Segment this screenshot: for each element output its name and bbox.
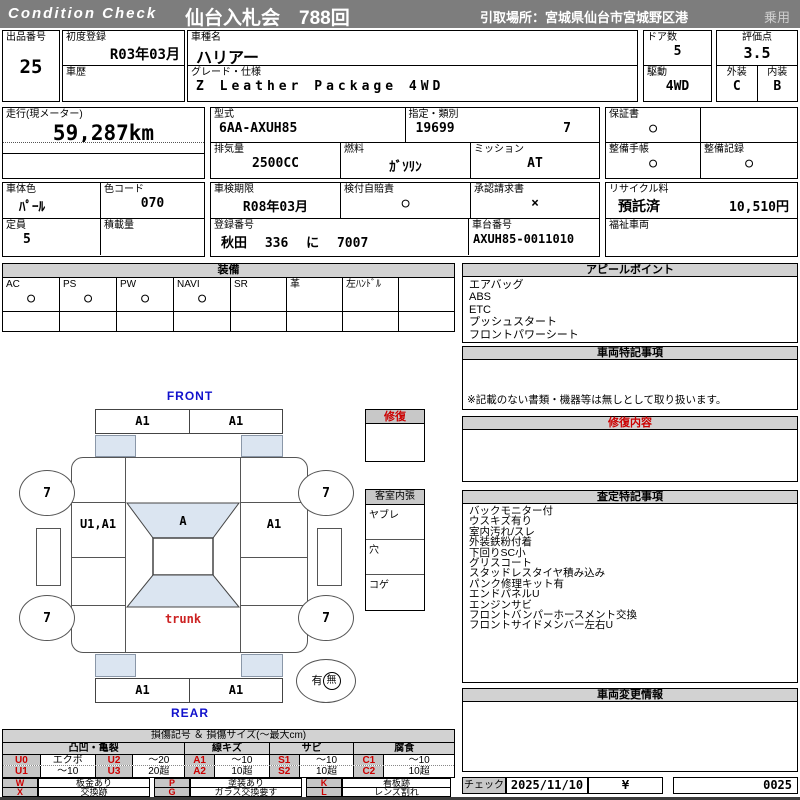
front-bumper: A1 A1 [95, 409, 283, 434]
equipment-title: 装備 [3, 264, 454, 278]
legend-size: 10超 [384, 766, 454, 777]
change-content [463, 702, 797, 706]
grade-label: グレード・仕様 [188, 66, 637, 79]
interior-row-hole: 穴 [366, 540, 424, 575]
legend-size: 10超 [215, 766, 270, 777]
interior-row-tear: ヤブレ [366, 505, 424, 540]
appeal-item: エアバッグ [469, 279, 791, 291]
rear-bumper-left-code: A1 [96, 679, 190, 702]
legend-size: 〜10 [384, 755, 454, 765]
class-label: 指定・類別 [406, 108, 600, 121]
maintenance-record-label: 整備記録 [701, 143, 797, 156]
regno-label: 登録番号 [211, 219, 468, 232]
interior-condition-title: 客室内張 [366, 490, 424, 505]
legend-title: 損傷記号 ＆ 損傷サイズ(〜最大cm) [3, 730, 454, 743]
auction-title: 仙台入札会 788回 [185, 3, 350, 30]
check-number: 0025 [674, 778, 797, 793]
mark-desc: レンズ割れ [342, 787, 451, 797]
interior-condition-box: 客室内張 ヤブレ 穴 コゲ [365, 489, 425, 611]
capacity-label: 定員 [3, 219, 100, 232]
tire-rear-left: 7 [19, 595, 75, 641]
legend-size: エクボ [41, 755, 96, 765]
legend-code: S1 [270, 755, 300, 765]
legend-code: C2 [354, 766, 384, 777]
auction-sheet: Condition Check 仙台入札会 788回 引取場所：宮城県仙台市宮城… [0, 0, 800, 800]
repair-details-content [462, 430, 798, 482]
legend-group-dents: 凸凹・亀裂 [3, 743, 185, 754]
odometer-label: 走行(現メーター) [3, 108, 204, 121]
first-reg-value: R03年03月 [63, 44, 184, 64]
legend-group-corrosion: 腐食 [354, 743, 454, 754]
pickup-location: 引取場所：宮城県仙台市宮城野区港 [480, 7, 688, 26]
documents-box: 保証書 ○ 整備手帳 ○ 整備記録 ○ [605, 107, 798, 179]
model-label: 車種名 [188, 31, 637, 44]
doors-drive-box: ドア数 5 駆動 4WD [643, 30, 712, 102]
mission-label: ミッション [471, 143, 599, 156]
body-color-value: ﾊﾟｰﾙ [3, 196, 100, 215]
load-label: 積載量 [101, 219, 204, 232]
vehicle-class: 乗用 [764, 7, 790, 26]
inspection-value: R08年03月 [211, 196, 340, 215]
recycle-status: 預託済 [618, 196, 660, 216]
mark-desc: ガラス交換要す [190, 787, 302, 797]
equip-label-ac: AC [3, 278, 59, 291]
rear-glass-panel [127, 575, 239, 607]
legend-code: C1 [354, 755, 384, 765]
mark-code: X [2, 787, 38, 797]
lot-label: 出品番号 [3, 31, 59, 44]
warranty-label: 保証書 [606, 108, 700, 121]
first-reg-label: 初度登録 [63, 31, 184, 44]
displacement-label: 排気量 [211, 143, 340, 156]
check-date-cell: 2025/11/10 [506, 777, 588, 794]
maintenance-record-value: ○ [701, 156, 797, 171]
model-box: 車種名 ハリアー グレード・仕様 Z Leather Package 4WD [187, 30, 638, 102]
legend-code: U3 [96, 766, 134, 777]
right-side-step [317, 528, 342, 586]
score-box: 評価点 3.5 外装 C 内装 B [716, 30, 798, 102]
odometer-value: 59,287km [3, 121, 204, 142]
lot-number-box: 出品番号 25 [2, 30, 60, 102]
appeal-item: フロントパワーシート [469, 329, 791, 341]
equip-value-ac: ○ [3, 291, 59, 306]
maintenance-book-label: 整備手帳 [606, 143, 700, 156]
center-panels: A trunk [125, 457, 241, 653]
inspection-box: 車検期限 R08年03月 検付自賠責 ○ 承認請求書 × 登録番号 秋田 336… [210, 182, 600, 257]
appeal-item: プッシュスタート [469, 316, 791, 328]
lot-value: 25 [3, 56, 59, 78]
front-bumper-right-code: A1 [190, 410, 282, 433]
color-box: 車体色 ﾊﾟｰﾙ 色コード 070 定員 5 積載量 [2, 182, 205, 257]
first-reg-box: 初度登録 R03年03月 車歴 [62, 30, 185, 102]
equip-value-pw: ○ [117, 291, 173, 306]
legend-size: 〜20 [133, 755, 185, 765]
rear-left-corner [95, 654, 136, 677]
check-date: 2025/11/10 [507, 778, 587, 793]
equip-label-lhd: 左ﾊﾝﾄﾞﾙ [343, 278, 398, 291]
tire-front-left: 7 [19, 470, 75, 516]
doors-value: 5 [644, 44, 711, 59]
legend-group-scratch: 線キズ [185, 743, 270, 754]
insurance-label: 検付自賠責 [341, 183, 470, 196]
drive-label: 駆動 [644, 66, 711, 79]
diagram-front-label: FRONT [110, 389, 270, 403]
approval-value: × [471, 196, 599, 211]
legend-code: A1 [185, 755, 215, 765]
roof-panel [153, 538, 213, 575]
special-note: ※記載のない書類・機器等は無しとして取り扱います。 [467, 392, 726, 407]
rear-bumper-right-code: A1 [190, 679, 282, 702]
fuel-value: ｶﾞｿﾘﾝ [341, 156, 470, 175]
legend-code: U0 [3, 755, 41, 765]
exterior-label: 外装 [717, 66, 757, 79]
class-no: 19699 [416, 121, 455, 136]
mark-code: G [154, 787, 190, 797]
repair-content [463, 430, 797, 434]
left-panel-code: U1,A1 [71, 517, 125, 531]
legend-code: U2 [96, 755, 134, 765]
rear-right-corner [241, 654, 283, 677]
warranty-value: ○ [606, 121, 700, 136]
equip-label-navi: NAVI [174, 278, 230, 291]
maintenance-book-value: ○ [606, 156, 700, 171]
doors-label: ドア数 [644, 31, 711, 44]
color-code-label: 色コード [101, 183, 204, 196]
mark-legend: W 板金あり P 塗装あり K 看板跡 X 交換跡 G ガラス交換要す L レン… [2, 778, 455, 797]
legend-group-rust: サビ [270, 743, 355, 754]
welfare-label: 福祉車両 [606, 219, 797, 232]
drive-value: 4WD [644, 79, 711, 94]
recycle-fee: 10,510円 [729, 196, 789, 216]
score-value: 3.5 [717, 44, 797, 62]
equip-label-leather: 革 [287, 278, 342, 291]
special-notes-title: 車両特記事項 [462, 346, 798, 360]
legend-code: S2 [270, 766, 300, 777]
check-currency: ¥ [589, 778, 662, 793]
legend-size: 〜10 [41, 766, 96, 777]
tire-rear-right: 7 [298, 595, 354, 641]
repair-flag-label: 修復 [365, 409, 425, 424]
model-code-value: 6AA-AXUH85 [211, 121, 405, 136]
rear-bumper: A1 A1 [95, 678, 283, 703]
spare-tire-indicator: 有無 [296, 659, 356, 703]
front-right-corner [241, 435, 283, 457]
equip-label-pw: PW [117, 278, 173, 291]
equip-value-ps: ○ [60, 291, 116, 306]
spare-no-circled: 無 [323, 672, 341, 690]
spec-box: 型式 6AA-AXUH85 指定・類別 19699 7 排気量 2500CC 燃… [210, 107, 600, 179]
header-bar: Condition Check 仙台入札会 788回 引取場所：宮城県仙台市宮城… [0, 0, 800, 28]
brand-logo: Condition Check [8, 5, 157, 22]
appeal-item: ABS [469, 291, 791, 303]
recycle-label: リサイクル料 [606, 183, 797, 196]
inspection-label: 車検期限 [211, 183, 340, 196]
mark-desc: 交換跡 [38, 787, 150, 797]
legend-size: 〜10 [215, 755, 270, 765]
check-currency-cell: ¥ [588, 777, 663, 794]
mission-value: AT [471, 156, 599, 171]
legend-size: 〜10 [300, 755, 355, 765]
exterior-grade: C [717, 79, 757, 94]
insurance-value: ○ [341, 196, 470, 211]
appeal-content: エアバッグ ABS ETC プッシュスタート フロントパワーシート [462, 277, 798, 343]
mark-code: L [306, 787, 342, 797]
displacement-value: 2500CC [211, 156, 340, 171]
model-code-label: 型式 [211, 108, 405, 121]
odometer-box: 走行(現メーター) 59,287km [2, 107, 205, 179]
interior-label: 内装 [758, 66, 798, 79]
recycle-box: リサイクル料 預託済 10,510円 福祉車両 [605, 182, 798, 257]
check-number-cell: 0025 [673, 777, 798, 794]
spare-yes-label: 有 [312, 675, 323, 687]
legend-size: 20超 [133, 766, 185, 777]
equip-label-ps: PS [60, 278, 116, 291]
repair-flag-box: 修復 [365, 409, 425, 462]
left-side-step [36, 528, 61, 586]
tire-front-right: 7 [298, 470, 354, 516]
capacity-value: 5 [3, 232, 100, 247]
equip-label-sr: SR [231, 278, 286, 291]
color-code-value: 070 [101, 196, 204, 211]
model-value: ハリアー [188, 44, 637, 66]
legend-code: A2 [185, 766, 215, 777]
history-label: 車歴 [63, 66, 184, 79]
hood-code: A [179, 514, 187, 528]
chassis-label: 車台番号 [469, 219, 599, 232]
legend-code: U1 [3, 766, 41, 777]
assessment-title: 査定特記事項 [462, 490, 798, 504]
diagram-rear-label: REAR [110, 706, 270, 720]
front-bumper-left-code: A1 [96, 410, 190, 433]
score-label: 評価点 [717, 31, 797, 44]
grade-value: Z Leather Package 4WD [188, 79, 637, 94]
interior-grade: B [758, 79, 798, 94]
damage-legend: 損傷記号 ＆ 損傷サイズ(〜最大cm) 凸凹・亀裂 線キズ サビ 腐食 U0 エ… [2, 729, 455, 778]
equip-label-extra [399, 278, 454, 280]
equipment-table: 装備 AC○ PS○ PW○ NAVI○ SR 革 左ﾊﾝﾄﾞﾙ [2, 263, 455, 332]
appeal-item: ETC [469, 304, 791, 316]
trunk-label: trunk [165, 612, 202, 626]
check-label: チェック [462, 777, 506, 794]
appeal-title: アピールポイント [462, 263, 798, 277]
fuel-label: 燃料 [341, 143, 470, 156]
body-color-label: 車体色 [3, 183, 100, 196]
change-info-content [462, 702, 798, 772]
regno-value: 秋田 336 に 7007 [211, 232, 468, 251]
special-notes-content: ※記載のない書類・機器等は無しとして取り扱います。 [462, 360, 798, 410]
equip-value-navi: ○ [174, 291, 230, 306]
approval-label: 承認請求書 [471, 183, 599, 196]
legend-size: 10超 [300, 766, 355, 777]
class-sub: 7 [563, 121, 571, 136]
interior-row-burn: コゲ [366, 575, 424, 610]
assessment-content: バックモニター付 ウスキズ有り 室内汚れ/スレ 外装鉄粉付着 下回りSC小 グリ… [462, 504, 798, 683]
front-left-corner [95, 435, 136, 457]
chassis-value: AXUH85-0011010 [469, 232, 599, 246]
right-panel-code: A1 [241, 517, 307, 531]
change-info-title: 車両変更情報 [462, 688, 798, 702]
assessment-item: フロントサイドメンバー左右U [469, 620, 791, 630]
repair-details-title: 修復内容 [462, 416, 798, 430]
